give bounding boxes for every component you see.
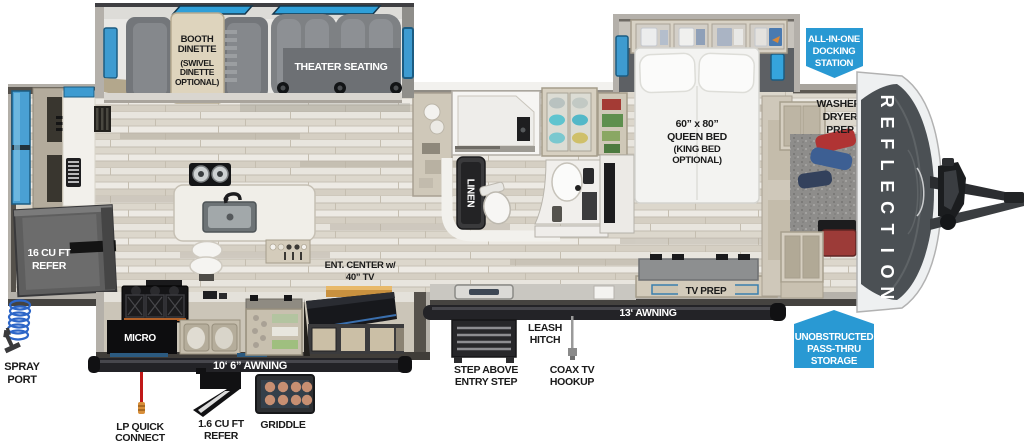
svg-text:REFER: REFER: [204, 430, 239, 441]
svg-text:PORT: PORT: [7, 374, 37, 386]
svg-text:DINETTE: DINETTE: [180, 67, 215, 77]
svg-text:DINETTE: DINETTE: [178, 44, 217, 55]
svg-text:MICRO: MICRO: [124, 333, 156, 344]
svg-text:1.6 CU FT: 1.6 CU FT: [198, 418, 245, 430]
svg-text:STATION: STATION: [815, 58, 854, 69]
svg-text:O: O: [877, 265, 897, 279]
svg-text:16 CU FT: 16 CU FT: [27, 247, 71, 259]
svg-text:(KING BED: (KING BED: [674, 144, 721, 155]
svg-text:OPTIONAL): OPTIONAL): [672, 155, 722, 166]
svg-text:COAX TV: COAX TV: [550, 364, 595, 376]
svg-text:60” x 80”: 60” x 80”: [676, 118, 719, 130]
svg-text:SPRAY: SPRAY: [4, 361, 40, 373]
svg-text:DRYER: DRYER: [823, 111, 859, 123]
svg-text:N: N: [877, 286, 897, 299]
svg-text:STORAGE: STORAGE: [811, 356, 858, 367]
svg-text:13‘ AWNING: 13‘ AWNING: [619, 307, 676, 319]
svg-text:DOCKING: DOCKING: [813, 46, 856, 57]
svg-text:PREP: PREP: [826, 124, 854, 136]
svg-text:GRIDDLE: GRIDDLE: [260, 419, 305, 431]
svg-text:LINEN: LINEN: [465, 179, 476, 208]
svg-text:F: F: [877, 138, 897, 149]
svg-text:OPTIONAL): OPTIONAL): [175, 77, 220, 87]
svg-text:ENTRY STEP: ENTRY STEP: [455, 376, 518, 388]
svg-text:TV PREP: TV PREP: [686, 286, 727, 297]
svg-text:CONNECT: CONNECT: [115, 432, 166, 441]
svg-text:40” TV: 40” TV: [346, 272, 375, 283]
svg-text:T: T: [877, 223, 897, 234]
svg-text:THEATER SEATING: THEATER SEATING: [294, 61, 387, 73]
svg-text:STEP ABOVE: STEP ABOVE: [454, 364, 518, 376]
svg-text:HOOKUP: HOOKUP: [550, 376, 595, 388]
svg-text:UNOBSTRUCTED: UNOBSTRUCTED: [795, 332, 874, 343]
svg-text:ENT. CENTER w/: ENT. CENTER w/: [325, 260, 396, 271]
svg-text:LEASH: LEASH: [528, 322, 562, 334]
svg-text:R: R: [877, 95, 897, 108]
svg-text:REFER: REFER: [32, 260, 67, 272]
svg-text:C: C: [877, 201, 897, 214]
svg-text:HITCH: HITCH: [530, 334, 561, 346]
svg-text:ALL-IN-ONE: ALL-IN-ONE: [808, 34, 860, 45]
svg-text:E: E: [877, 116, 897, 128]
svg-text:I: I: [877, 248, 897, 253]
svg-text:10‘ 6” AWNING: 10‘ 6” AWNING: [213, 360, 287, 372]
svg-text:L: L: [877, 160, 897, 171]
svg-text:QUEEN BED: QUEEN BED: [667, 131, 727, 143]
svg-text:PASS-THRU: PASS-THRU: [807, 344, 861, 355]
svg-text:E: E: [877, 180, 897, 192]
